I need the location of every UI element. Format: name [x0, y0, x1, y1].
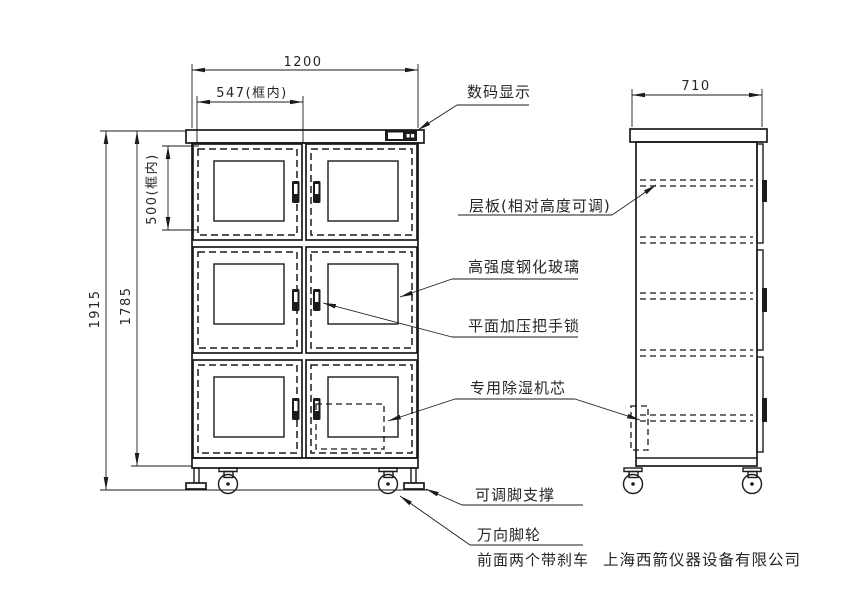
- door-handle: [292, 181, 300, 203]
- callout-adjustable-foot: 可调脚支撑: [426, 486, 583, 505]
- door-mid-right: [306, 247, 417, 353]
- dim-label-inner-height: 500(框内): [144, 153, 160, 224]
- door-mid-left: [193, 247, 302, 353]
- door-row-3: [193, 360, 417, 458]
- callouts: 数码显示 层板(相对高度可调) 高强度钢化玻璃 平面加压把手锁 专用除湿机芯: [323, 83, 656, 569]
- dim-label-inner-width: 547(框内): [216, 85, 287, 101]
- digital-display: [385, 130, 417, 141]
- drawing-canvas: 1200 547(框内) 500(框内) 1785 1915: [0, 0, 850, 600]
- door-handle: [292, 398, 300, 420]
- door-window: [328, 161, 398, 221]
- callout-label: 专用除湿机芯: [470, 379, 566, 397]
- callout-label: 平面加压把手锁: [468, 317, 580, 335]
- door-bottom-right: [306, 360, 417, 458]
- callout-label: 数码显示: [467, 83, 531, 101]
- side-door-edge: [757, 144, 767, 452]
- callout-handle-lock: 平面加压把手锁: [323, 303, 580, 337]
- door-bottom-left: [193, 360, 302, 458]
- callout-digital-display: 数码显示: [418, 83, 531, 130]
- dim-label-body-height: 1785: [119, 286, 134, 325]
- callout-tempered-glass: 高强度钢化玻璃: [400, 258, 580, 297]
- callout-shelf: 层板(相对高度可调): [458, 185, 656, 215]
- shelves: [640, 180, 753, 421]
- door-seal: [311, 365, 412, 453]
- hinge: [762, 180, 767, 202]
- caster-side-left: [624, 468, 643, 494]
- hinge: [762, 288, 767, 312]
- door-window: [214, 161, 284, 221]
- dehumidifier-side-outline: [631, 406, 648, 450]
- door-top-left: [193, 144, 302, 240]
- side-top-cap: [630, 129, 767, 142]
- door-seal: [198, 252, 297, 348]
- dim-label-total-height: 1915: [88, 289, 103, 328]
- door-window: [328, 264, 398, 324]
- adjustable-foot-left: [186, 468, 206, 489]
- door-handle: [313, 398, 321, 420]
- hinge: [762, 398, 767, 422]
- door-seal: [198, 365, 297, 453]
- door-window: [214, 264, 284, 324]
- side-view: [624, 129, 768, 494]
- door-seal: [311, 149, 412, 235]
- callout-label: 高强度钢化玻璃: [468, 258, 580, 276]
- callout-label: 万向脚轮: [477, 526, 541, 544]
- door-row-2: [193, 247, 417, 353]
- door-seal: [311, 252, 412, 348]
- dimensions: 1200 547(框内) 500(框内) 1785 1915: [88, 55, 762, 490]
- door-handle: [292, 289, 300, 311]
- dim-total-height: 1915: [88, 131, 106, 490]
- dim-depth: 710: [632, 79, 762, 127]
- dehumidifier-hidden-outline: [316, 404, 384, 449]
- door-seal: [198, 149, 297, 235]
- dim-label-depth: 710: [681, 79, 710, 94]
- callout-caster: 万向脚轮 前面两个带刹车: [400, 496, 589, 569]
- callout-label: 层板(相对高度可调): [469, 197, 611, 215]
- door-top-right: [306, 144, 417, 240]
- caster-side-right: [743, 468, 762, 494]
- door-window: [328, 377, 398, 437]
- callout-dehumidifier: 专用除湿机芯: [388, 379, 640, 421]
- dim-label-overall-width: 1200: [283, 55, 322, 70]
- door-window: [214, 377, 284, 437]
- dim-inner-height: 500(框内): [144, 146, 199, 230]
- technical-drawing: 1200 547(框内) 500(框内) 1785 1915: [0, 0, 850, 600]
- side-body: [636, 142, 757, 466]
- door-handle: [313, 181, 321, 203]
- callout-caster-note: 前面两个带刹车: [477, 551, 589, 569]
- door-handle: [313, 289, 321, 311]
- adjustable-foot-right: [404, 468, 424, 489]
- door-row-1: [193, 144, 417, 240]
- company-name: 上海西箭仪器设备有限公司: [603, 550, 801, 569]
- callout-label: 可调脚支撑: [475, 486, 555, 504]
